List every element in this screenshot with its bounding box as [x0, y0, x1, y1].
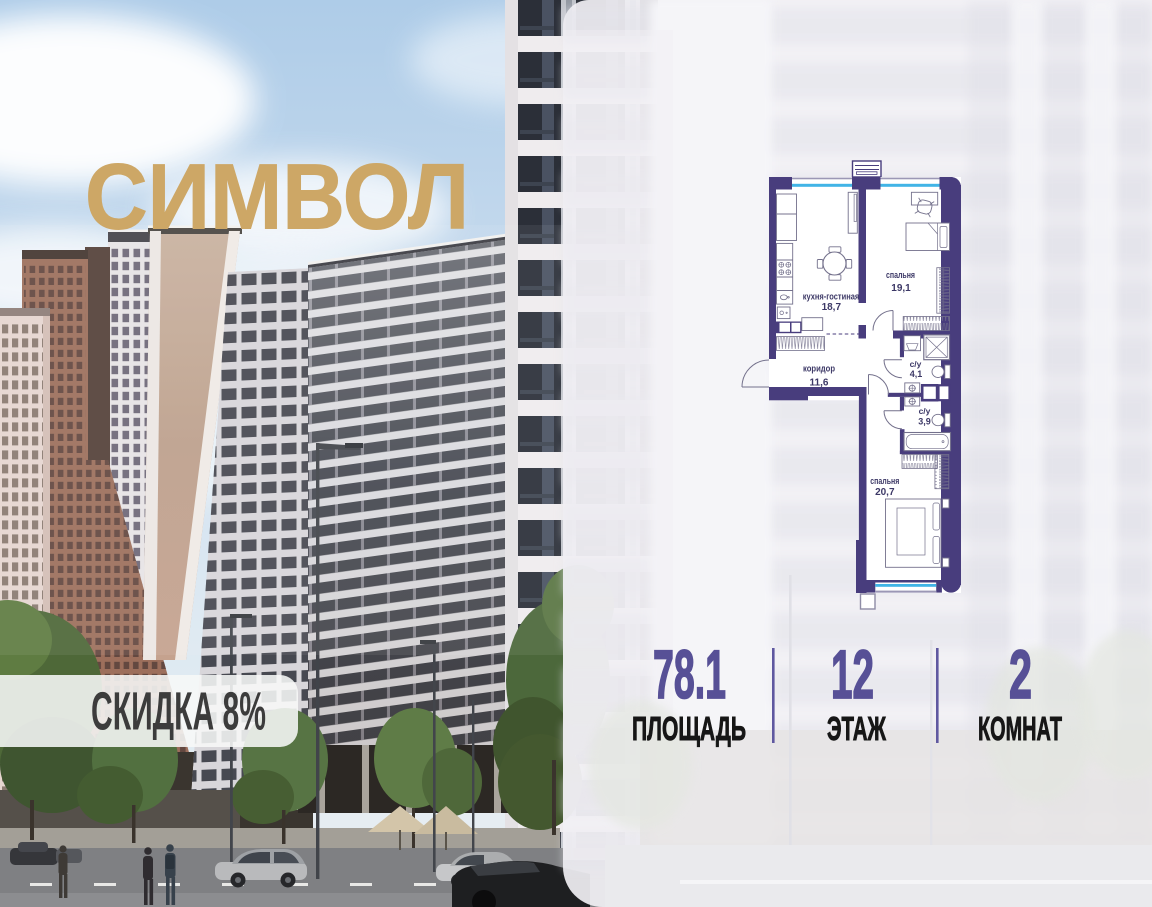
svg-text:спальня: спальня [870, 476, 899, 487]
svg-text:12: 12 [831, 636, 874, 713]
svg-text:СИМВОЛ: СИМВОЛ [85, 145, 469, 249]
svg-text:19,1: 19,1 [891, 283, 911, 294]
svg-text:ЭТАЖ: ЭТАЖ [827, 710, 886, 747]
svg-text:ПЛОЩАДЬ: ПЛОЩАДЬ [632, 710, 746, 747]
svg-text:коридор: коридор [803, 364, 835, 375]
svg-text:4,1: 4,1 [910, 369, 923, 379]
svg-text:с/у: с/у [910, 359, 922, 369]
svg-text:спальня: спальня [886, 270, 915, 281]
svg-text:11,6: 11,6 [810, 378, 829, 389]
svg-text:кухня-гостиная: кухня-гостиная [803, 292, 860, 302]
svg-text:2: 2 [1009, 636, 1032, 713]
svg-text:с/у: с/у [919, 406, 931, 416]
svg-text:78.1: 78.1 [653, 636, 726, 713]
svg-text:КОМНАТ: КОМНАТ [978, 710, 1062, 747]
svg-text:СКИДКА 8%: СКИДКА 8% [91, 683, 266, 742]
svg-text:3,9: 3,9 [918, 417, 931, 427]
svg-text:20,7: 20,7 [875, 487, 895, 498]
svg-text:18,7: 18,7 [822, 302, 842, 313]
